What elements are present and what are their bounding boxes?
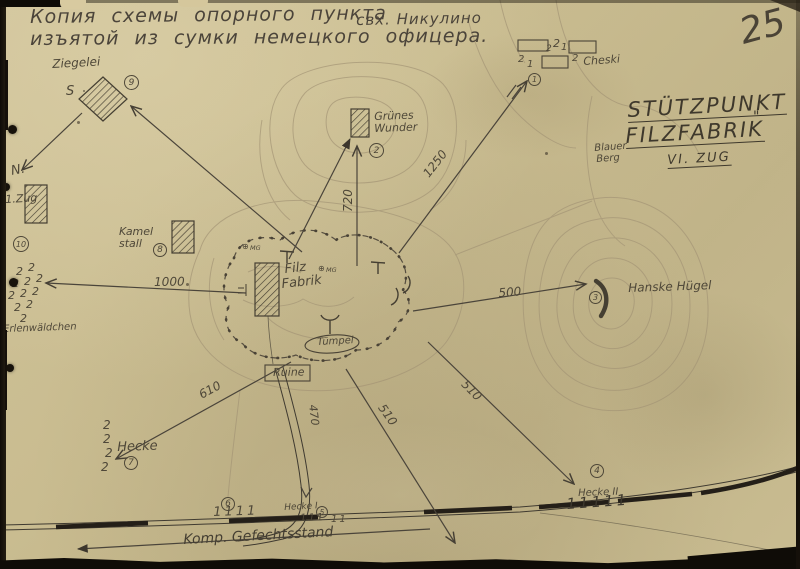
torn-paper-spot	[178, 0, 208, 7]
distance-470: 470	[307, 404, 320, 426]
tree-row: 1111	[213, 504, 259, 519]
ruine-label: Ruine	[273, 366, 305, 378]
north-mark: N.	[10, 163, 26, 178]
tree-symbol: 2	[36, 273, 43, 284]
distance-500: 500	[498, 285, 522, 299]
paper-speck	[186, 283, 189, 286]
contour-line	[209, 258, 224, 340]
page-title-line2: изъятой из сумки немецкого офицера.	[30, 27, 488, 49]
position-10-badge: 10	[13, 236, 29, 252]
ziegelei-label: Ziegelei	[52, 55, 101, 69]
tree-symbol: 2	[26, 299, 33, 310]
position-9-badge: 9	[124, 75, 139, 90]
gruenes-wunder-building	[351, 109, 369, 137]
squad-count: 1	[561, 43, 567, 53]
punch-hole	[8, 125, 17, 134]
position-4-badge: 4	[590, 464, 604, 478]
squad-box	[518, 40, 548, 51]
punch-hole	[6, 364, 14, 372]
tree-row: 111	[300, 513, 325, 524]
contour-line	[228, 390, 240, 497]
zug1-label: 1.Zug	[5, 192, 38, 205]
blauer-berg-label2: Berg	[596, 153, 620, 165]
tree-symbol: 2	[28, 262, 35, 273]
arrow-from-ziegelei-southwest	[22, 113, 82, 170]
tree-symbol: 2	[16, 266, 23, 277]
kamelstall-label2: stall	[119, 238, 142, 249]
road-dash	[424, 508, 512, 512]
squad-count: 1	[527, 60, 533, 70]
mg-label: MG	[326, 267, 337, 274]
trench-hook-symbol	[391, 288, 398, 305]
distance-720: 720	[342, 189, 354, 212]
tree-symbol: 2	[103, 419, 111, 431]
contour-lines	[189, 0, 708, 497]
mg-symbol-icon: ⊕	[318, 265, 325, 273]
contour-line	[587, 96, 625, 246]
squad-count: 2	[546, 45, 552, 54]
factory-path	[268, 316, 273, 364]
faint-track	[540, 513, 790, 554]
tree-symbol: 2	[103, 433, 111, 445]
contour-line	[523, 197, 708, 410]
tree-row: 11111	[566, 493, 630, 512]
mg-stand-symbol	[371, 262, 385, 274]
tree-symbol: 2	[32, 286, 39, 297]
position-1-badge: 1	[528, 73, 541, 86]
road-dashes	[56, 467, 800, 527]
road-dash	[701, 467, 800, 493]
tree-symbol: 2	[105, 447, 113, 459]
position-2-badge: 2	[369, 143, 384, 158]
ziegelei-s-mark: S	[66, 85, 74, 98]
punch-hole	[9, 278, 18, 287]
filzfabrik-building	[255, 263, 279, 316]
scanned-map-page: Копия схемы опорного пункта свх. Никулин…	[0, 0, 800, 569]
kamelstall-building	[172, 221, 194, 253]
arrow-to-cheski-1250	[399, 81, 527, 253]
tree-row: 11	[331, 515, 348, 525]
ziegelei-building	[79, 77, 127, 121]
mg-symbol-icon: ⊕	[242, 243, 249, 251]
arrow-to-hecke2-510	[428, 342, 574, 484]
torn-paper-spot	[60, 0, 86, 9]
contour-line	[268, 318, 318, 339]
squad-count: 2	[572, 54, 578, 64]
gruenes-wunder-label2: Wunder	[374, 121, 417, 133]
scan-edge-left-bump	[5, 60, 8, 130]
contour-line	[189, 200, 464, 390]
bearing-arrows	[22, 81, 586, 549]
tree-symbol: 2	[8, 290, 15, 301]
hecke1-label: Hecke I	[284, 502, 318, 513]
hanske-huegel-label: Hanske Hügel	[628, 279, 712, 294]
position-3-badge: 3	[589, 291, 602, 304]
tree-symbol: 2	[101, 461, 109, 473]
squad-count: 2	[553, 38, 560, 49]
squad-box	[569, 41, 596, 53]
arrow-road-south-tip	[301, 487, 312, 497]
arrow-to-ziegelei	[131, 106, 302, 252]
contour-line	[260, 120, 290, 220]
infantry-arc-symbol	[321, 315, 339, 334]
scan-edge-right	[796, 0, 800, 569]
arrow-to-erlenwaeldchen-1000	[46, 283, 246, 293]
scan-edge-left-bump	[5, 330, 7, 410]
distance-1000: 1000	[154, 275, 185, 288]
squad-count: 2	[518, 55, 524, 65]
position-8-badge: 8	[153, 243, 167, 257]
paper-speck	[83, 90, 85, 92]
mg-label: MG	[250, 245, 261, 252]
cheski-label: Cheski	[583, 53, 620, 67]
filzfabrik-label2: Fabrik	[281, 274, 322, 291]
fence-mark	[238, 284, 246, 296]
paper-speck	[545, 152, 548, 155]
contour-line	[573, 258, 652, 349]
paper-speck	[77, 121, 80, 124]
hecke-label: Hecke	[117, 440, 158, 454]
tuempel-label: Tümpel	[317, 336, 354, 348]
tree-symbol: 2	[24, 276, 31, 287]
map-title-quote: "	[753, 110, 759, 124]
contour-line	[539, 218, 690, 391]
squad-box	[542, 56, 568, 68]
main-road-edge	[0, 471, 800, 530]
position-7-badge: 7	[124, 456, 138, 470]
kamelstall-label1: Kamel	[119, 226, 153, 237]
